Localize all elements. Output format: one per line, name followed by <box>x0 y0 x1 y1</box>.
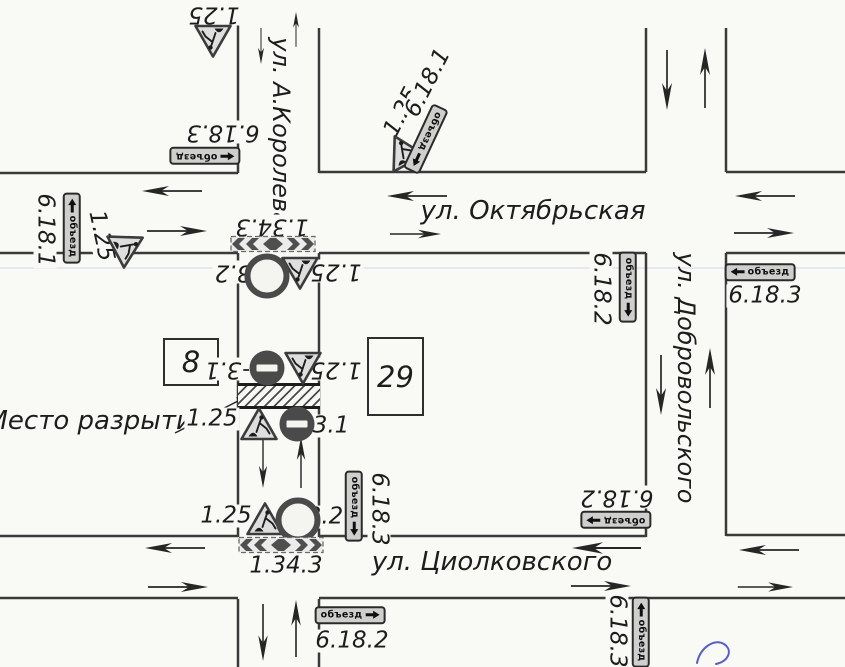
roadworks-sign-icon <box>239 406 279 442</box>
code-6-18-2-right-upper: 6.18.2 <box>590 250 613 327</box>
no-vehicles-sign-icon <box>245 254 290 299</box>
code-6-18-2-right-lower: 6.18.2 <box>578 486 655 509</box>
detour-plate-text: объезд <box>176 151 218 161</box>
detour-arrow-icon <box>350 521 359 535</box>
detour-plate-text: объезд <box>623 258 633 300</box>
detour-plate-right-upper: объезд <box>619 252 637 323</box>
roadworks-sign-icon <box>283 350 323 386</box>
detour-scheme-canvas: 8 29 ул. А.Королева ул. Октябрьская ул. … <box>0 0 845 667</box>
no-entry-sign-icon <box>280 407 315 442</box>
building-8-number: 8 <box>182 345 200 379</box>
no-entry-sign-icon <box>250 351 285 386</box>
detour-arrow-icon <box>220 152 234 161</box>
detour-plate-text: объезд <box>321 610 363 620</box>
detour-plate-topleft: объезд <box>170 147 241 165</box>
excavation-label: Место разрытия <box>0 408 209 434</box>
detour-arrow-icon <box>624 302 633 316</box>
building-29: 29 <box>367 337 424 416</box>
detour-plate-text: объезд <box>349 477 359 519</box>
street-label-dobrovolskogo: ул. Добровольского <box>674 253 698 504</box>
detour-plate-left: объезд <box>63 193 81 264</box>
code-6-18-3-topleft: 6.18.3 <box>184 121 261 144</box>
detour-arrow-icon <box>68 199 77 213</box>
code-6-18-2-bottom: 6.18.2 <box>313 630 390 653</box>
detour-plate-bottom: объезд <box>315 606 386 624</box>
code-1-25-row3: 1.25 <box>184 408 239 431</box>
roadworks-sign-icon <box>193 23 233 59</box>
code-6-18-1-left: 6.18.1 <box>34 191 57 268</box>
detour-arrow-icon <box>637 603 646 617</box>
detour-plate-mid: объезд <box>345 471 363 542</box>
detour-plate-text: объезд <box>604 515 646 525</box>
street-label-tsiolkovskogo: ул. Циолковского <box>372 549 613 575</box>
detour-arrow-icon <box>587 516 601 525</box>
code-6-18-3-bottom: 6.18.3 <box>606 592 629 667</box>
detour-arrow-icon <box>731 268 745 277</box>
street-label-oktyabrskaya: ул. Октябрьская <box>421 198 646 224</box>
detour-plate-text: объезд <box>636 620 646 662</box>
code-6-18-3-right-upper: 6.18.3 <box>726 285 803 308</box>
code-3-1-row2: 3.1 <box>203 358 244 381</box>
building-29-number: 29 <box>377 360 414 394</box>
chevron-board-icon <box>230 236 316 253</box>
detour-plate-text: объезд <box>748 267 790 277</box>
detour-plate-text: объезд <box>67 216 77 258</box>
detour-arrow-icon <box>410 151 424 167</box>
street-label-koroleva: ул. А.Королева <box>269 37 293 226</box>
code-6-18-3-mid: 6.18.3 <box>368 470 391 547</box>
detour-plate-right-lower: объезд <box>581 511 652 529</box>
detour-plate-far-right: объезд <box>725 263 796 281</box>
code-3-1-row3: 3.1 <box>311 415 352 438</box>
chevron-board-icon <box>238 537 324 554</box>
code-1-34-3-bottom: 1.34.3 <box>247 555 324 578</box>
code-1-34-3-top: 1.34.3 <box>233 215 310 238</box>
detour-plate-bottom-right: объезд <box>632 597 650 667</box>
detour-arrow-icon <box>365 611 379 620</box>
pen-mark <box>697 642 729 664</box>
